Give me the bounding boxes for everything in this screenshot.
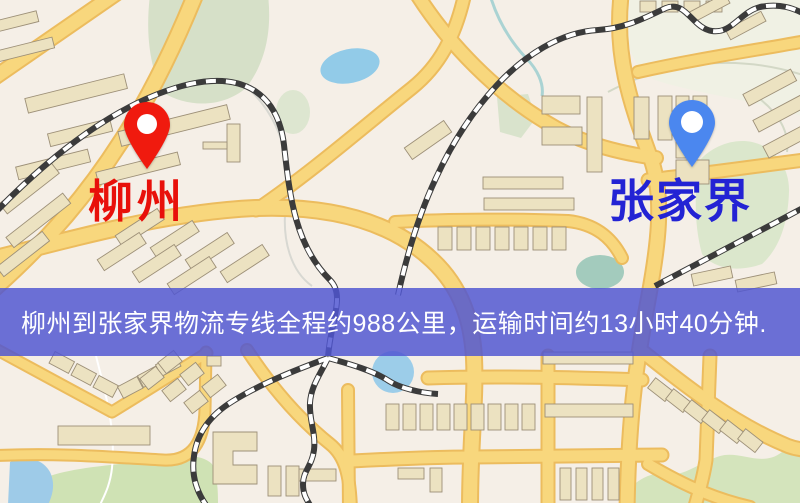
origin-pin[interactable]: [122, 100, 172, 170]
route-info-banner: 柳州到张家界物流专线全程约988公里，运输时间约13小时40分钟.: [0, 288, 800, 356]
map-pin-icon: [122, 100, 172, 170]
map-pin-icon: [667, 98, 717, 168]
origin-city-label: 柳州: [88, 179, 186, 224]
destination-pin[interactable]: [667, 98, 717, 168]
map-artwork: [0, 0, 800, 503]
route-info-text: 柳州到张家界物流专线全程约988公里，运输时间约13小时40分钟.: [21, 304, 767, 340]
map-canvas[interactable]: 柳州到张家界物流专线全程约988公里，运输时间约13小时40分钟. 柳州 张家界: [0, 0, 800, 503]
destination-city-label: 张家界: [608, 178, 752, 224]
